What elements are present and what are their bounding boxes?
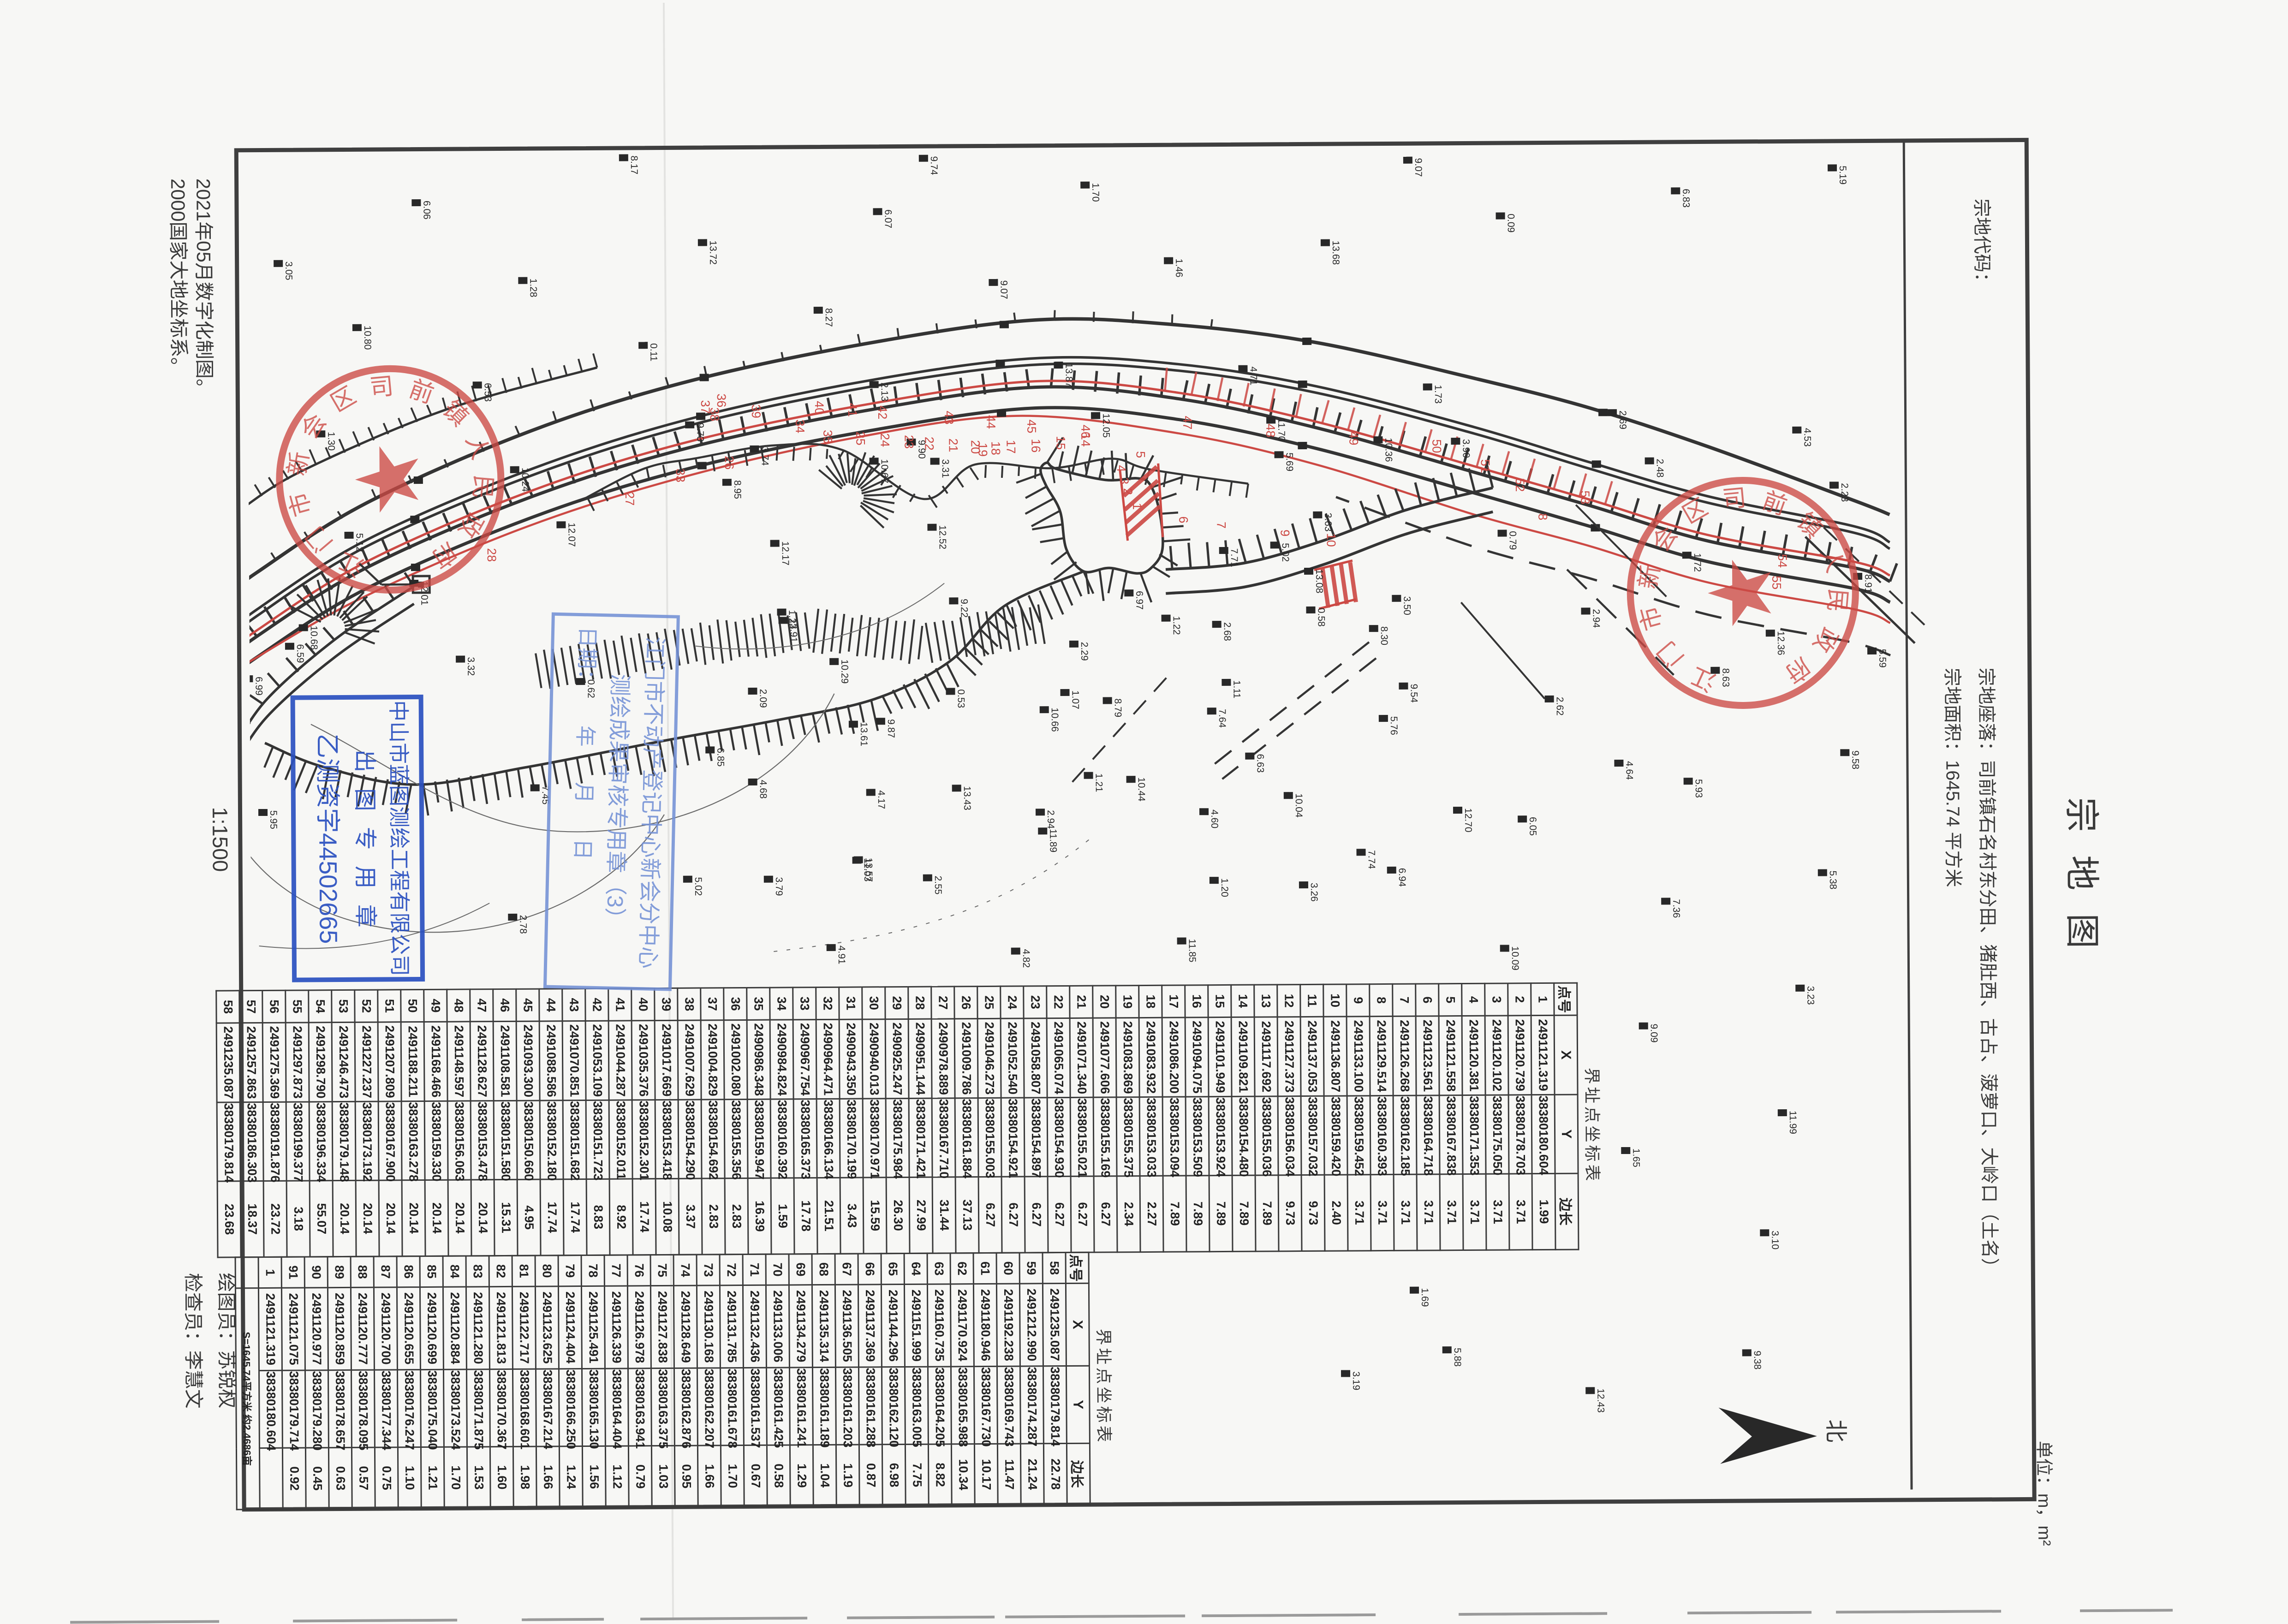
svg-text:9.74: 9.74 [929,156,939,175]
svg-text:2.62: 2.62 [1555,697,1565,716]
svg-text:4: 4 [1114,465,1128,472]
svg-text:5.88: 5.88 [1452,1348,1463,1367]
svg-text:12.43: 12.43 [1595,1388,1606,1413]
svg-text:1.22: 1.22 [1171,616,1182,635]
svg-text:9.58: 9.58 [1850,750,1860,769]
svg-text:2.69: 2.69 [1617,410,1628,429]
svg-text:10.09: 10.09 [1510,946,1520,970]
svg-text:6.07: 6.07 [883,209,894,228]
svg-text:11.89: 11.89 [1048,829,1058,852]
svg-text:9.22: 9.22 [959,599,969,618]
svg-text:9: 9 [1278,529,1292,536]
svg-text:2.94: 2.94 [1045,810,1056,829]
svg-text:3.63: 3.63 [1323,513,1333,532]
svg-text:1: 1 [1130,503,1144,510]
svg-text:5.02: 5.02 [693,877,703,896]
svg-text:7.36: 7.36 [1671,899,1681,918]
svg-text:1.73: 1.73 [1433,385,1443,404]
svg-text:1.28: 1.28 [528,279,538,297]
svg-text:6: 6 [1176,516,1190,523]
svg-text:11.03: 11.03 [862,858,873,881]
svg-text:12.05: 12.05 [1101,413,1111,438]
svg-text:5.76: 5.76 [1388,716,1399,735]
svg-text:1.72: 1.72 [1692,553,1703,572]
svg-text:8.95: 8.95 [732,480,743,499]
svg-text:9.07: 9.07 [1413,158,1424,177]
svg-text:54: 54 [1776,554,1789,568]
svg-text:1.21: 1.21 [1094,773,1104,792]
svg-text:8: 8 [1536,513,1549,520]
svg-text:21: 21 [946,438,960,452]
svg-text:45: 45 [1025,419,1038,433]
svg-text:5.59: 5.59 [1877,649,1888,668]
svg-text:36: 36 [715,393,728,407]
svg-text:3.19: 3.19 [1351,1371,1361,1390]
svg-text:8.91: 8.91 [1863,574,1873,593]
svg-text:8.17: 8.17 [629,155,639,174]
svg-text:13.68: 13.68 [1330,241,1341,265]
svg-text:6.99: 6.99 [253,677,264,696]
svg-text:2.23: 2.23 [1839,483,1850,502]
svg-text:26: 26 [722,456,736,470]
svg-text:13.72: 13.72 [708,240,718,265]
svg-text:10.44: 10.44 [1136,777,1147,802]
svg-text:49: 49 [1347,431,1360,445]
svg-text:8.79: 8.79 [1113,698,1123,717]
svg-text:3.90: 3.90 [1460,439,1471,458]
svg-text:44: 44 [984,415,998,429]
svg-text:5.02: 5.02 [1280,543,1291,562]
svg-text:13.08: 13.08 [1314,569,1324,594]
svg-text:35: 35 [821,430,834,444]
svg-text:10.24: 10.24 [520,468,530,492]
svg-text:10.67: 10.67 [879,459,890,483]
svg-text:2.13: 2.13 [879,382,890,401]
svg-text:12.17: 12.17 [780,541,791,565]
svg-text:20: 20 [968,440,982,454]
svg-text:6.59: 6.59 [295,644,305,663]
svg-text:48: 48 [1263,423,1277,437]
svg-text:7.71: 7.71 [1229,548,1239,567]
svg-text:司: 司 [369,373,395,402]
svg-text:1.20: 1.20 [1219,878,1230,897]
svg-text:12.52: 12.52 [937,525,947,549]
svg-text:司: 司 [1721,484,1747,513]
svg-text:24: 24 [878,433,892,447]
svg-text:28: 28 [485,548,499,562]
svg-text:33: 33 [673,469,687,482]
svg-text:4.68: 4.68 [758,780,769,799]
svg-text:10.68: 10.68 [309,625,319,650]
svg-text:0.79: 0.79 [1507,531,1518,550]
svg-text:4.17: 4.17 [876,790,887,809]
svg-text:6.94: 6.94 [1397,868,1407,887]
svg-text:4.60: 4.60 [1209,809,1220,828]
svg-text:10.66: 10.66 [1049,708,1060,732]
svg-text:民: 民 [1823,588,1851,614]
svg-text:22: 22 [922,437,936,451]
svg-text:2.48: 2.48 [1655,458,1665,477]
svg-text:39: 39 [749,405,763,418]
svg-text:16: 16 [1029,439,1043,452]
svg-text:7.64: 7.64 [1217,709,1227,728]
svg-text:2.94: 2.94 [1591,609,1602,628]
svg-text:15: 15 [1054,436,1067,450]
svg-text:2: 2 [1121,488,1135,495]
svg-text:3.31: 3.31 [940,459,951,478]
svg-text:52: 52 [1513,478,1527,492]
svg-text:40: 40 [812,401,826,415]
svg-text:6.05: 6.05 [1527,817,1538,836]
svg-text:4.71: 4.71 [1248,367,1258,386]
svg-text:0.53: 0.53 [956,689,966,708]
svg-text:4.64: 4.64 [1624,761,1634,780]
svg-text:10.80: 10.80 [362,326,373,350]
svg-text:新: 新 [284,450,314,478]
svg-text:3.32: 3.32 [465,657,476,676]
svg-text:43: 43 [942,410,956,424]
svg-text:11.99: 11.99 [1787,1111,1798,1134]
svg-text:3.50: 3.50 [1401,596,1412,615]
svg-text:11.85: 11.85 [1187,939,1198,962]
svg-text:46: 46 [1078,425,1092,439]
svg-text:3.26: 3.26 [1309,883,1319,902]
svg-text:34: 34 [793,419,807,433]
svg-text:2.29: 2.29 [1079,642,1090,661]
svg-text:3.05: 3.05 [283,262,294,280]
svg-text:13.43: 13.43 [962,786,972,810]
svg-text:10.36: 10.36 [1383,438,1394,462]
svg-text:38: 38 [708,407,721,421]
svg-text:2.78: 2.78 [518,915,528,934]
svg-text:3.23: 3.23 [1805,986,1816,1005]
svg-text:13.91: 13.91 [788,618,799,642]
svg-text:55: 55 [1770,576,1783,589]
svg-text:6.85: 6.85 [715,748,726,767]
svg-text:2.09: 2.09 [757,689,768,708]
svg-text:5.69: 5.69 [1284,452,1295,471]
svg-text:27: 27 [623,492,637,506]
svg-text:53: 53 [1578,490,1592,504]
svg-text:10.29: 10.29 [839,660,850,684]
svg-text:4.91: 4.91 [836,946,847,964]
svg-text:7: 7 [1214,522,1228,529]
svg-text:12.07: 12.07 [566,523,577,547]
svg-text:新: 新 [1634,563,1665,591]
svg-text:47: 47 [1180,416,1194,429]
svg-text:民: 民 [468,474,497,500]
svg-text:11.70: 11.70 [1276,418,1287,441]
svg-text:13.87: 13.87 [1063,363,1074,387]
svg-text:25: 25 [853,431,867,445]
svg-text:0.09: 0.09 [1506,214,1516,232]
svg-text:10.04: 10.04 [1293,793,1304,818]
svg-text:9.54: 9.54 [1408,684,1419,703]
svg-text:5: 5 [1134,451,1148,458]
svg-text:9.38: 9.38 [1752,1350,1763,1369]
svg-text:1.46: 1.46 [1174,258,1184,277]
svg-text:5.38: 5.38 [1828,870,1838,889]
svg-text:市: 市 [1635,603,1668,633]
svg-text:42: 42 [876,405,889,419]
svg-text:7.74: 7.74 [1366,850,1377,869]
svg-text:2.68: 2.68 [1222,622,1233,641]
svg-text:17: 17 [1004,440,1018,454]
svg-text:8.27: 8.27 [823,308,834,327]
svg-text:9.07: 9.07 [998,280,1009,299]
svg-text:1.65: 1.65 [1631,1148,1641,1167]
svg-text:41: 41 [846,403,859,417]
svg-text:51: 51 [1478,459,1492,473]
svg-text:9.09: 9.09 [1649,1024,1659,1043]
svg-text:3.10: 3.10 [1770,1231,1780,1249]
svg-text:9.87: 9.87 [886,719,896,738]
svg-text:5.19: 5.19 [1837,166,1848,184]
svg-text:8.63: 8.63 [1720,668,1731,687]
svg-text:10: 10 [1324,533,1338,547]
svg-text:4.82: 4.82 [1021,949,1031,968]
svg-text:23: 23 [902,435,916,449]
svg-text:市: 市 [285,489,317,519]
svg-text:0.58: 0.58 [1316,608,1326,627]
svg-text:5.12: 5.12 [354,533,365,552]
svg-text:1.11: 1.11 [1231,680,1242,698]
svg-text:6.63: 6.63 [1255,754,1265,773]
svg-text:6.83: 6.83 [1680,189,1691,208]
svg-text:12.70: 12.70 [1463,808,1473,833]
svg-text:0.11: 0.11 [648,343,659,361]
svg-text:1.70: 1.70 [1090,183,1101,202]
svg-text:13.61: 13.61 [858,722,869,746]
svg-text:1.30: 1.30 [326,432,336,451]
svg-text:5.95: 5.95 [268,810,279,829]
svg-text:12.36: 12.36 [1776,631,1786,655]
svg-text:1.07: 1.07 [1070,690,1081,709]
svg-text:3: 3 [1117,477,1131,484]
svg-text:4.53: 4.53 [1802,428,1812,447]
svg-text:3.74: 3.74 [759,447,770,466]
svg-text:50: 50 [1430,439,1443,453]
svg-text:3.79: 3.79 [774,877,784,896]
svg-text:9.73: 9.73 [695,422,705,441]
svg-text:6.06: 6.06 [421,201,432,220]
svg-text:18: 18 [989,441,1002,455]
svg-text:1.69: 1.69 [1419,1288,1430,1307]
svg-text:2.55: 2.55 [933,876,943,895]
svg-text:6.97: 6.97 [1134,591,1144,610]
svg-text:5.93: 5.93 [1693,779,1704,798]
svg-text:6.53: 6.53 [483,383,493,402]
svg-text:8.30: 8.30 [1379,626,1389,645]
